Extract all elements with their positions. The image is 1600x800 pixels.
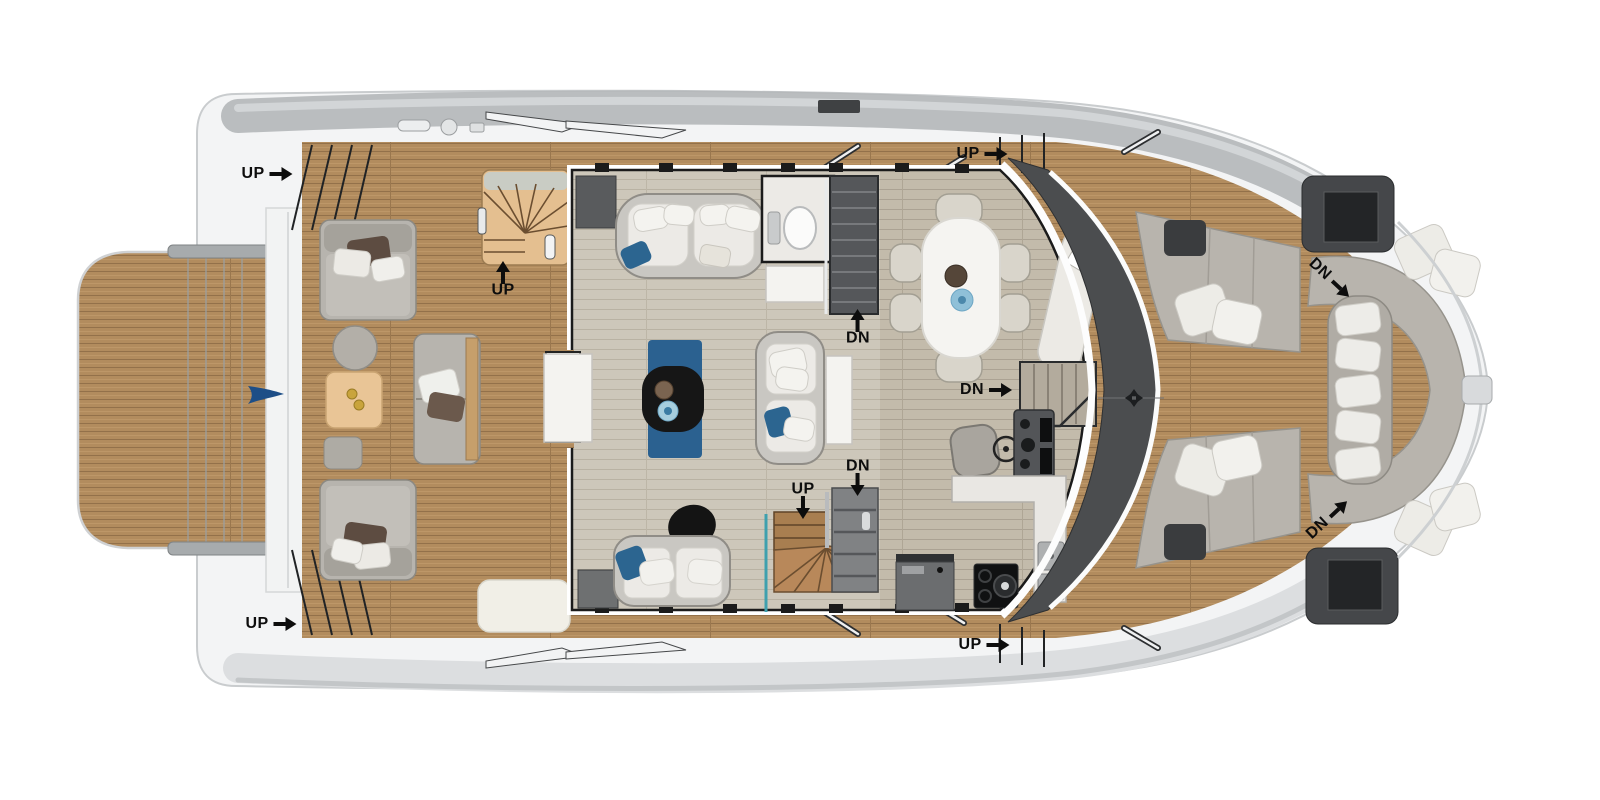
dining-chair <box>998 244 1030 282</box>
table-decor <box>945 265 967 287</box>
dining-chair <box>998 294 1030 332</box>
cockpit-ottoman <box>324 437 362 469</box>
arrow-down-icon <box>796 496 810 519</box>
salon-coffee-table <box>642 366 704 432</box>
arrow-down-icon <box>851 473 865 496</box>
toilet <box>784 207 816 249</box>
dining-table <box>922 218 1000 358</box>
salon-sofa-starboard <box>614 536 730 606</box>
salon-cabinet <box>578 570 618 608</box>
label-port-hull-stairs: DN <box>846 314 870 347</box>
label-text: UP <box>241 166 264 182</box>
label-text: DN <box>846 331 870 347</box>
cockpit-spiral-stairs <box>478 170 570 265</box>
label-cockpit-flybridge-stairs: UP <box>491 266 514 299</box>
day-head <box>762 176 834 262</box>
washbasin <box>768 212 780 244</box>
cockpit-coffee-table <box>326 372 382 428</box>
label-text: UP <box>491 283 514 299</box>
label-salon-center-stairs-down: DN <box>846 459 870 492</box>
dining-chair <box>890 244 922 282</box>
arrow-right-icon <box>989 383 1012 397</box>
arrow-right-icon <box>274 617 297 631</box>
cockpit-center-bench <box>414 334 480 464</box>
label-salon-center-stairs-up: UP <box>791 482 814 515</box>
salon-cabinet <box>576 176 616 228</box>
cockpit-locker-pad <box>478 580 570 632</box>
label-port-side-deck-steps: UP <box>956 146 1007 162</box>
label-text: UP <box>958 637 981 653</box>
salon <box>544 163 1109 613</box>
dining-chair <box>890 294 922 332</box>
deck-plan-drawing <box>0 0 1600 800</box>
stair-shelf-unit <box>832 488 878 592</box>
cockpit-round-table <box>333 326 377 370</box>
bow-lounger <box>1328 296 1392 484</box>
marble-side-table <box>826 356 852 444</box>
label-starboard-hull-stairs: DN <box>960 382 1012 398</box>
label-text: UP <box>956 146 979 162</box>
arrow-up-icon <box>851 309 865 332</box>
marble-side-table <box>766 266 824 302</box>
arrow-up-icon <box>496 261 510 284</box>
swim-platform <box>78 245 270 555</box>
arrow-right-icon <box>985 147 1008 161</box>
platform-beam <box>168 245 270 258</box>
port-hull-staircase <box>826 176 878 314</box>
cockpit-sofa-starboard <box>320 480 416 580</box>
label-text: DN <box>960 382 984 398</box>
arrow-right-icon <box>987 638 1010 652</box>
label-starboard-side-deck-steps: UP <box>958 637 1009 653</box>
cockpit-sofa-port <box>320 220 416 320</box>
marble-console <box>544 354 592 442</box>
platform-beam <box>168 542 270 555</box>
label-aft-port-side-steps: UP <box>241 166 292 182</box>
salon-sofa-port <box>616 194 766 278</box>
salon-sofa-center <box>756 332 824 464</box>
yacht-deck-plan: UP UP UP DN DN UP DN UP UP DN DN <box>0 0 1600 800</box>
arrow-right-icon <box>270 167 293 181</box>
label-aft-starboard-side-steps: UP <box>245 616 296 632</box>
label-text: UP <box>245 616 268 632</box>
